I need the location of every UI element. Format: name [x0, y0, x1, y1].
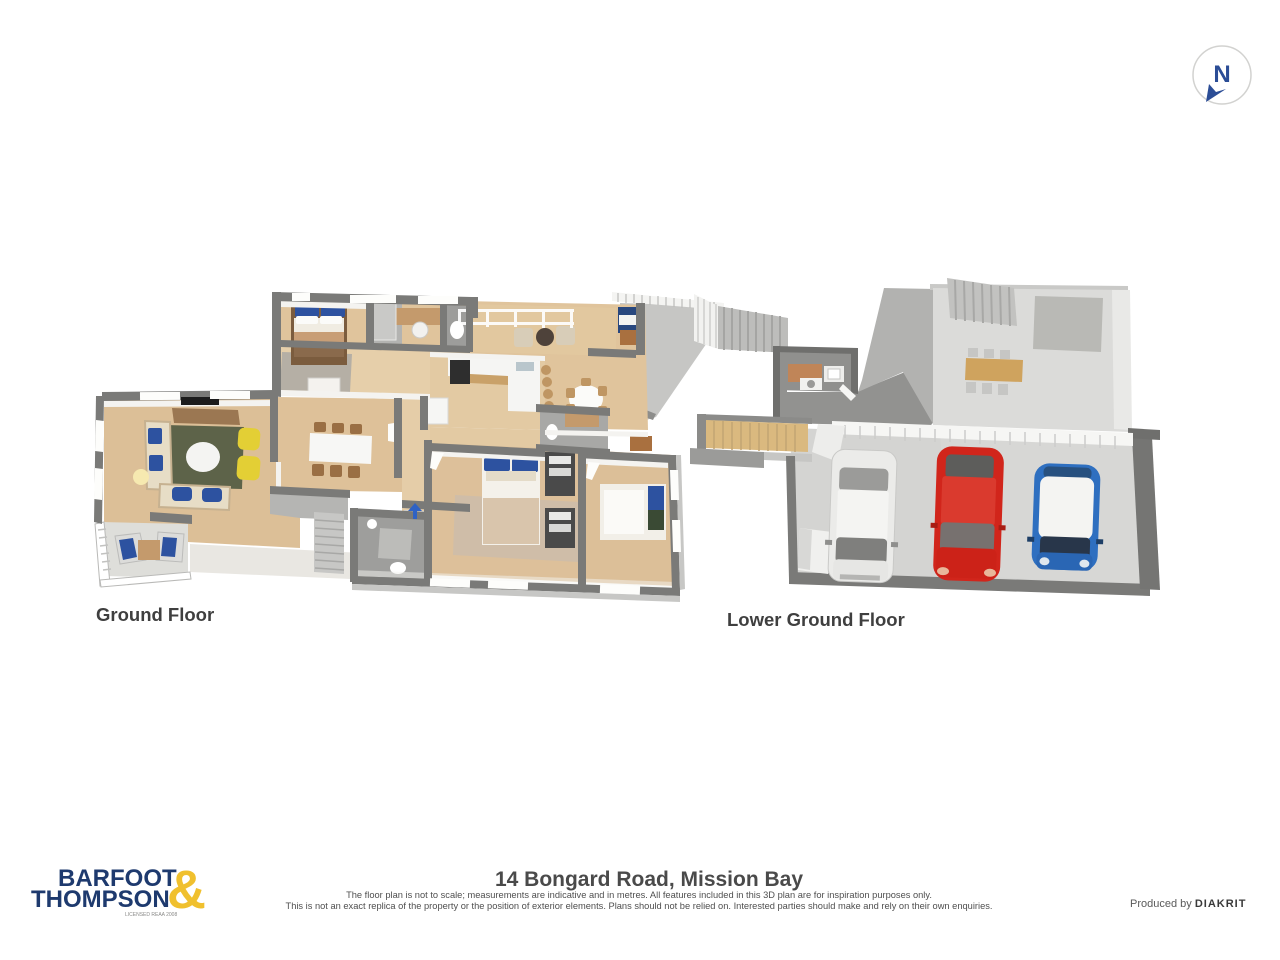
svg-text:&: &	[167, 860, 206, 920]
svg-text:Lower Ground Floor: Lower Ground Floor	[727, 609, 905, 630]
svg-text:THOMPSON: THOMPSON	[31, 886, 170, 913]
svg-text:LICENSED REAA 2008: LICENSED REAA 2008	[125, 912, 177, 918]
svg-text:14 Bongard Road, Mission Bay: 14 Bongard Road, Mission Bay	[495, 868, 803, 891]
svg-text:The floor plan is not to scale: The floor plan is not to scale; measurem…	[346, 890, 932, 900]
svg-text:This is not an exact replica o: This is not an exact replica of the prop…	[286, 901, 993, 911]
svg-text:Produced by DIAKRIT: Produced by DIAKRIT	[1130, 898, 1246, 910]
svg-text:N: N	[1213, 61, 1230, 88]
svg-text:Ground Floor: Ground Floor	[96, 604, 214, 625]
